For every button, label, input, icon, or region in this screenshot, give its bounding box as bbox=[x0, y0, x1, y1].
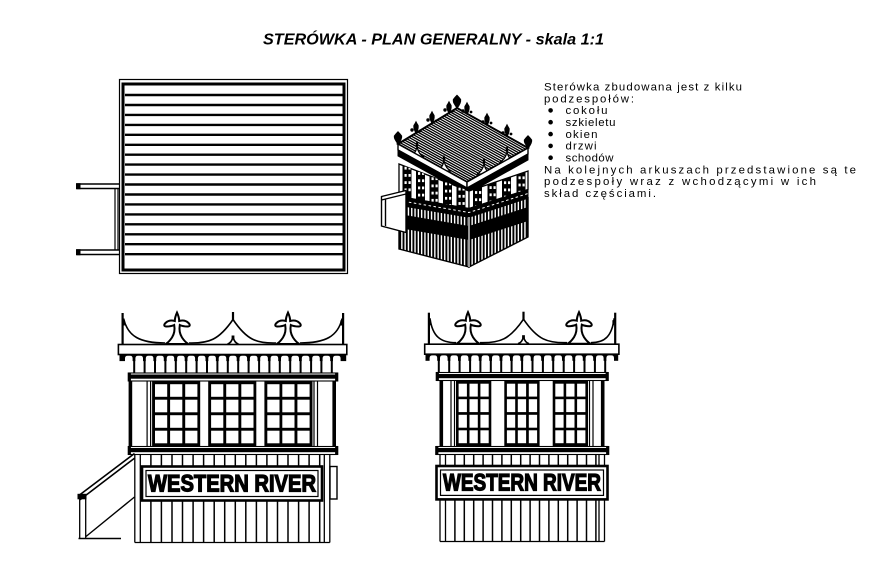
svg-text:STERÓWKA - PLAN GENERALNY - sk: STERÓWKA - PLAN GENERALNY - skala 1:1 bbox=[263, 31, 604, 49]
svg-text:WESTERN RIVER: WESTERN RIVER bbox=[148, 471, 316, 498]
svg-text:schodów: schodów bbox=[566, 153, 615, 165]
svg-text:Sterówka zbudowana jest z kilk: Sterówka zbudowana jest z kilku bbox=[544, 82, 742, 94]
svg-text:podzespoły wraz z wchodzącymi: podzespoły wraz z wchodzącymi w ich bbox=[544, 176, 816, 188]
svg-text:Na kolejnych arkuszach przedst: Na kolejnych arkuszach przedstawione są … bbox=[544, 164, 856, 176]
svg-text:cokołu: cokołu bbox=[566, 105, 608, 117]
svg-text:szkieletu: szkieletu bbox=[566, 117, 616, 129]
svg-text:okien: okien bbox=[566, 129, 598, 141]
svg-text:skład częściami.: skład częściami. bbox=[544, 188, 656, 200]
svg-text:drzwi: drzwi bbox=[566, 141, 597, 153]
svg-text:WESTERN RIVER: WESTERN RIVER bbox=[443, 470, 601, 497]
svg-text:podzespołów:: podzespołów: bbox=[544, 93, 634, 105]
